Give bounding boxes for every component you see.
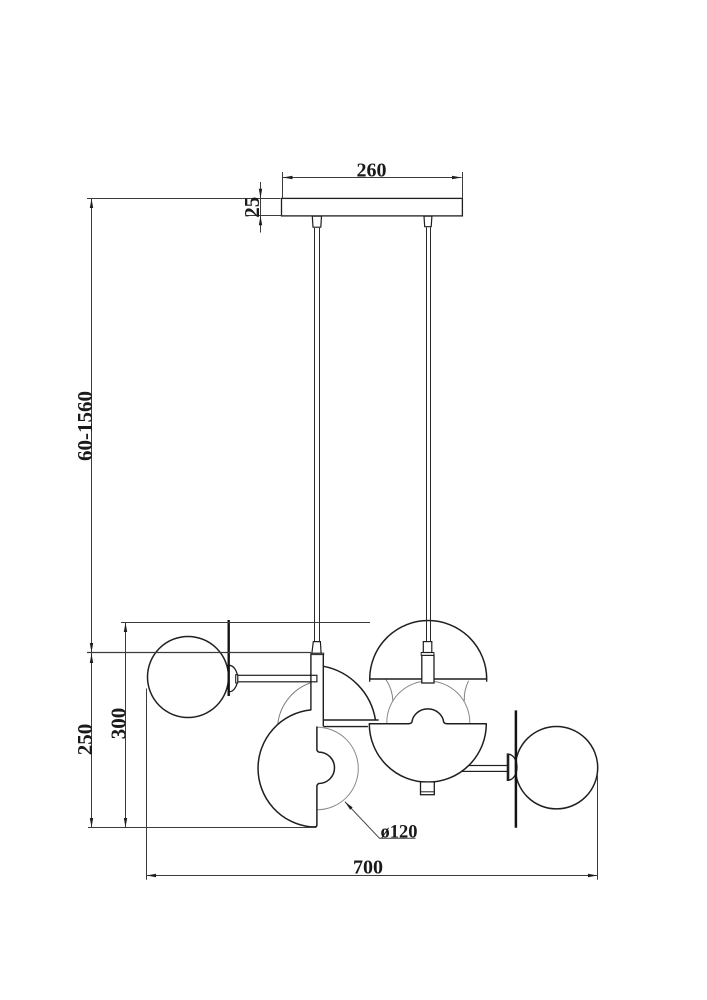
svg-text:250: 250: [73, 724, 97, 756]
svg-text:260: 260: [357, 159, 387, 181]
svg-text:ø120: ø120: [381, 822, 418, 842]
svg-text:700: 700: [353, 856, 383, 878]
svg-text:60-1560: 60-1560: [73, 391, 97, 461]
svg-text:25: 25: [240, 197, 264, 218]
svg-text:300: 300: [107, 708, 131, 740]
